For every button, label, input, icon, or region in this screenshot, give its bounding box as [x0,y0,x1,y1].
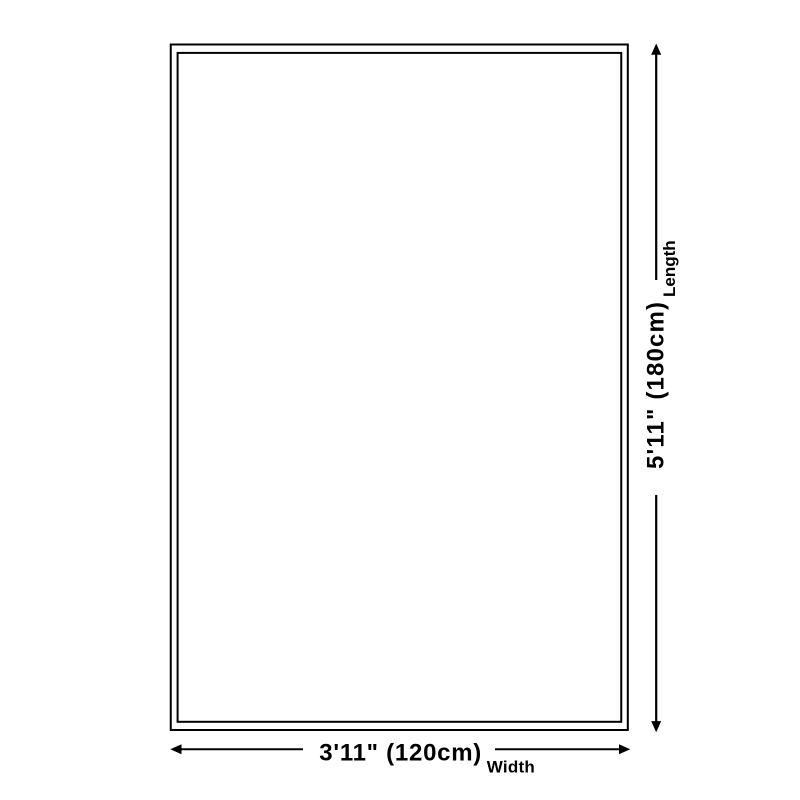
svg-text:Length: Length [660,240,679,297]
svg-text:3'11" (120cm): 3'11" (120cm) [319,740,481,767]
svg-text:5'11" (180cm): 5'11" (180cm) [643,302,670,469]
svg-text:Width: Width [487,757,535,776]
